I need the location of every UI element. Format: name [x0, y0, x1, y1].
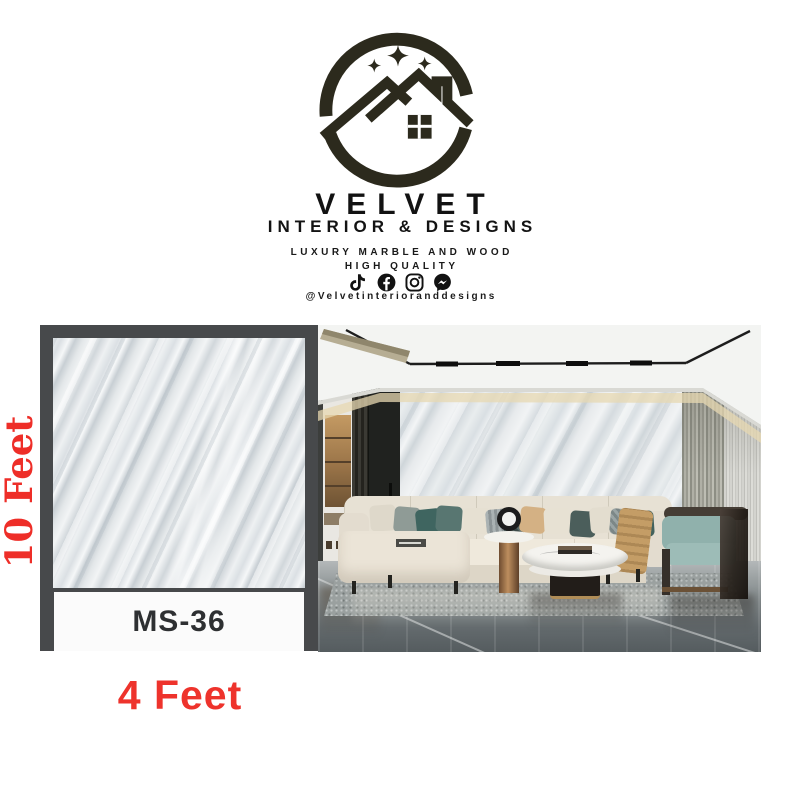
throw-pillow [435, 505, 463, 533]
throw-pillow [543, 507, 570, 534]
sofa-leg [454, 581, 458, 594]
product-code: MS-36 [132, 605, 225, 639]
dimension-label-width: 4 Feet [60, 672, 300, 719]
floor-reflection [670, 595, 754, 635]
chaise-lounge [338, 531, 470, 583]
sofa-leg [352, 581, 356, 594]
magazine [396, 539, 426, 547]
tiktok-icon [348, 272, 369, 293]
facebook-icon [376, 272, 397, 293]
flyer-canvas: VELVET INTERIOR & DESIGNS LUXURY MARBLE … [0, 0, 800, 800]
sample-label-strip: MS-36 [54, 592, 304, 651]
brand-logo [313, 26, 481, 194]
messenger-icon [432, 272, 453, 293]
alarm-clock [497, 507, 521, 531]
bronze-pedestal [499, 539, 519, 593]
brand-subtitle-luxury: LUXURY MARBLE AND WOOD [200, 247, 600, 258]
marble-texture-overlay [53, 338, 305, 588]
brand-tagline: INTERIOR & DESIGNS [160, 217, 640, 237]
side-table-top [484, 531, 534, 543]
accent-chair [660, 507, 754, 601]
instagram-icon [404, 272, 425, 293]
sofa-leg [636, 569, 640, 582]
marble-sample-swatch [53, 338, 305, 588]
books [558, 546, 592, 550]
chair-bottom-rail [662, 587, 728, 592]
marble-sample-board: MS-36 [40, 325, 318, 651]
sofa-leg [388, 575, 392, 588]
social-handle: @Velvetinterioranddesigns [200, 291, 600, 302]
coffee-table [522, 543, 628, 603]
chair-side-panel [720, 509, 748, 599]
room-photo [318, 325, 761, 652]
dimension-label-height: 10 Feet [0, 387, 41, 597]
social-icons-row [200, 271, 600, 293]
ceiling [318, 325, 761, 445]
marble-vein [540, 551, 600, 559]
